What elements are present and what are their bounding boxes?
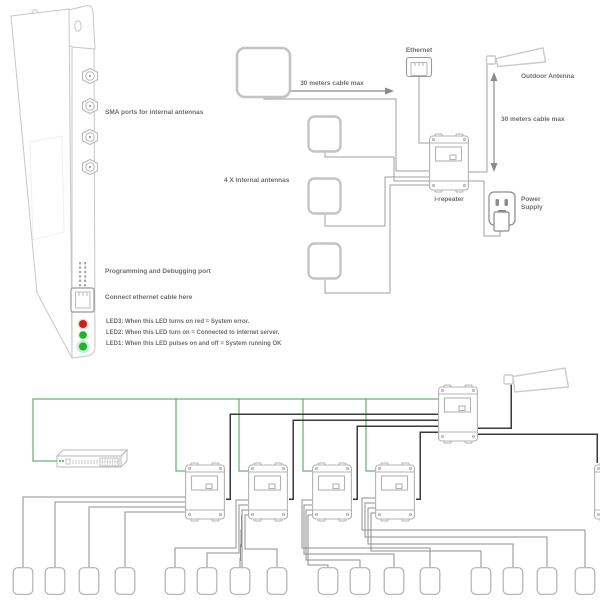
led1-label: LED1: When this LED pulses on and off = … xyxy=(106,341,282,349)
power-plug-icon xyxy=(494,212,509,231)
led3-label: LED3: When this LED turns on red = Syste… xyxy=(106,319,249,327)
led2-label: LED2: When this LED turn on = Connected … xyxy=(106,330,280,338)
repeater-label: i-repeater xyxy=(424,196,474,204)
ceiling-antenna xyxy=(165,568,185,595)
ceiling-antenna xyxy=(115,568,135,595)
sma-port-icon xyxy=(83,130,98,145)
antenna-gray-cables xyxy=(23,497,585,567)
repeater-unit-5-cutoff xyxy=(595,463,600,521)
ceiling-antenna xyxy=(13,568,33,595)
ceiling-antenna xyxy=(197,568,217,595)
sma-port-icon xyxy=(83,160,98,175)
ceiling-antenna xyxy=(230,568,250,595)
ceiling-antenna xyxy=(471,568,491,595)
ceiling-antenna xyxy=(537,568,557,595)
ceiling-antenna xyxy=(45,568,65,595)
power-supply-label: Power Supply xyxy=(521,196,553,212)
internal-antenna-2 xyxy=(309,117,341,152)
sma-ports-label: SMA ports for internal antennas xyxy=(105,109,203,117)
vertical-distance-arrow xyxy=(491,72,498,172)
ethernet-jack-label: Connect ethernet cable here xyxy=(105,294,192,302)
outdoor-antenna-label: Outdoor Antenna xyxy=(521,73,574,81)
horizontal-cable-label: 30 meters cable max xyxy=(287,80,377,88)
repeater-unit-2 xyxy=(249,463,288,521)
main-unit-device xyxy=(11,6,98,358)
outdoor-antenna-cable-top xyxy=(468,64,487,172)
master-repeater-unit xyxy=(439,385,478,443)
i-repeater-unit xyxy=(430,134,469,192)
led1-green-indicator xyxy=(77,340,90,353)
ceiling-antenna xyxy=(420,568,440,595)
repeater-unit-4 xyxy=(376,463,415,521)
ethernet-cable-top xyxy=(419,77,430,143)
diagram-page: SMA ports for internal antennas Programm… xyxy=(0,0,600,600)
internal-antenna-cables xyxy=(264,97,430,293)
led3-red-indicator xyxy=(78,319,89,330)
ceiling-antenna xyxy=(503,568,523,595)
ceiling-antenna xyxy=(79,568,99,595)
repeater-unit-1 xyxy=(186,463,225,521)
ceiling-antenna-row xyxy=(13,568,595,595)
outdoor-antenna-icon xyxy=(487,48,546,67)
ceiling-antenna xyxy=(267,568,287,595)
programming-port-label: Programming and Debugging port xyxy=(105,268,211,276)
vertical-cable-label: 30 meters cable max xyxy=(501,116,565,124)
led2-green-indicator xyxy=(78,330,88,340)
sma-port-icon xyxy=(83,99,98,114)
ceiling-antenna xyxy=(318,568,338,595)
ceiling-antenna xyxy=(384,568,404,595)
sma-port-icon xyxy=(83,69,98,84)
internal-antenna-1 xyxy=(237,48,290,97)
network-switch-icon xyxy=(57,450,127,467)
ceiling-antenna xyxy=(350,568,370,595)
internal-antenna-4 xyxy=(309,244,341,279)
internal-antennas-label: 4 X Internal antennas xyxy=(224,177,289,185)
internal-antenna-3 xyxy=(309,179,341,214)
repeater-unit-3 xyxy=(313,463,352,521)
ethernet-label: Ethernet xyxy=(399,47,439,55)
outdoor-antenna-bottom-icon xyxy=(504,368,569,392)
ethernet-jack-icon xyxy=(71,288,94,312)
ceiling-antenna xyxy=(575,568,595,595)
ethernet-port-icon xyxy=(407,58,432,77)
diagram-canvas xyxy=(0,0,600,600)
